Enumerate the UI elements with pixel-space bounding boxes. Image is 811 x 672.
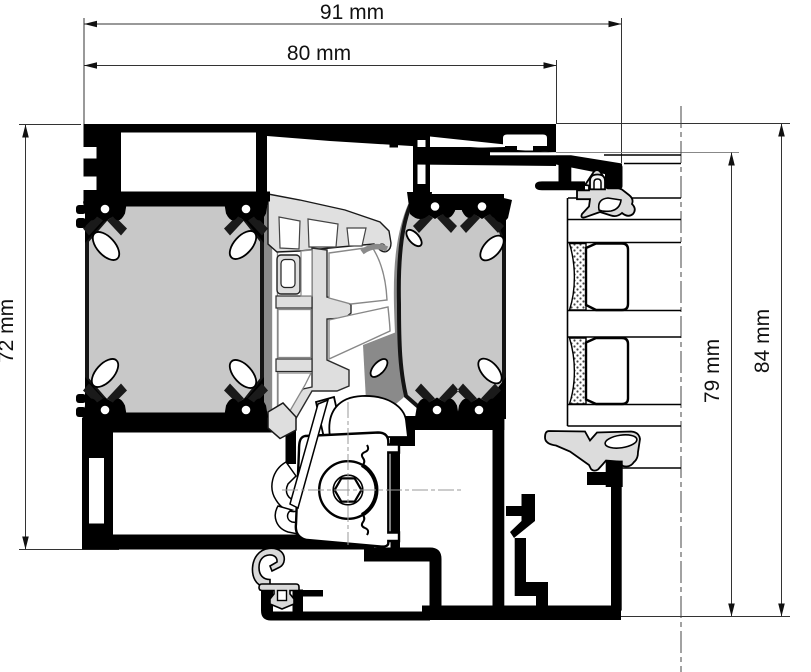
svg-text:72 mm: 72 mm [0,299,18,363]
svg-text:91 mm: 91 mm [320,1,384,24]
svg-text:80 mm: 80 mm [287,42,351,65]
svg-text:79 mm: 79 mm [701,339,724,403]
svg-text:84 mm: 84 mm [751,309,774,373]
